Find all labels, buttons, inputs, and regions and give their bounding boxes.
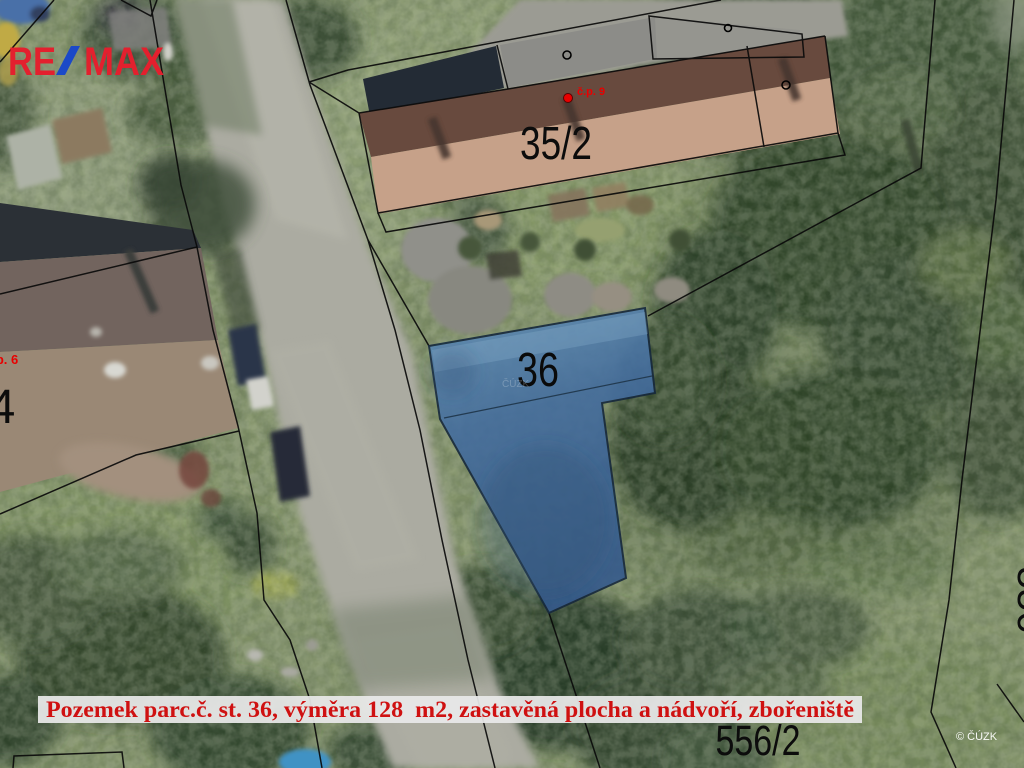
svg-text:© ČÚZK: © ČÚZK	[956, 730, 998, 743]
svg-text:Pozemek parc.č. st. 36, výměra: Pozemek parc.č. st. 36, výměra 128 m2, z…	[46, 697, 854, 722]
svg-text:MAX: MAX	[84, 40, 164, 84]
svg-text:č.p. 6: č.p. 6	[0, 352, 18, 367]
svg-text:35/2: 35/2	[520, 117, 592, 169]
svg-text:556: 556	[1009, 567, 1024, 634]
svg-text:RE: RE	[8, 40, 56, 84]
svg-text:556/2: 556/2	[716, 717, 801, 765]
svg-text:4: 4	[0, 381, 15, 434]
svg-text:č.p. 9: č.p. 9	[577, 86, 605, 98]
svg-text:ČÚZK: ČÚZK	[502, 377, 530, 390]
